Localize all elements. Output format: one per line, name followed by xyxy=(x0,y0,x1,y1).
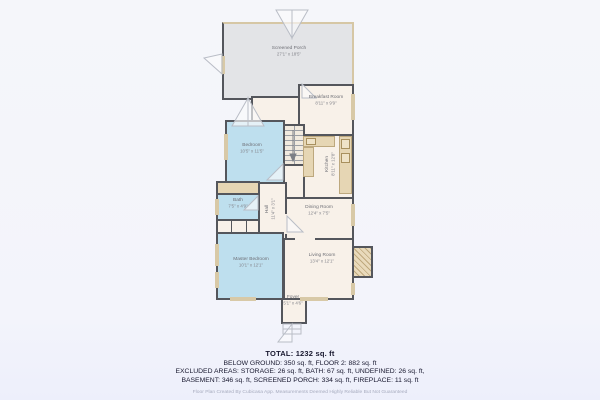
entry-steps xyxy=(283,329,301,334)
room-label-bath: Bath 7'5" x 4'9" xyxy=(228,198,247,210)
room-label-dining: Dining Room 12'4" x 7'5" xyxy=(305,205,333,217)
room-label-foyer: Foyer 5'1" x 4'6" xyxy=(283,295,302,307)
window xyxy=(215,272,219,288)
window xyxy=(215,244,219,266)
appliance-icon xyxy=(341,153,350,163)
room-dining xyxy=(285,197,354,240)
wall-opening xyxy=(295,236,315,242)
window xyxy=(230,297,256,301)
window xyxy=(351,283,355,295)
entry-steps xyxy=(283,324,301,329)
sink-icon xyxy=(306,138,316,145)
summary-line: BELOW GROUND: 350 sq. ft, FLOOR 2: 882 s… xyxy=(0,360,600,367)
closet-divider xyxy=(231,219,232,234)
door-swing-icon xyxy=(278,324,292,342)
wall-opening xyxy=(284,214,289,234)
window xyxy=(221,56,225,74)
room-label-master-bedroom: Master Bedroom 10'1" x 12'1" xyxy=(233,257,268,269)
appliance-icon xyxy=(341,139,350,149)
area-summary: TOTAL: 1232 sq. ft BELOW GROUND: 350 sq.… xyxy=(0,349,600,395)
room-label-breakfast: Breakfast Room 8'11" x 9'9" xyxy=(309,95,343,107)
window xyxy=(351,94,355,120)
window xyxy=(351,204,355,226)
disclaimer-text: Floor Plan Created By Cubicasa App. Meas… xyxy=(54,389,546,394)
room-breakfast xyxy=(298,84,354,136)
room-label-bedroom: Bedroom 10'5" x 11'5" xyxy=(240,143,264,155)
window xyxy=(300,297,328,301)
summary-line: EXCLUDED AREAS: STORAGE: 26 sq. ft, BATH… xyxy=(0,368,600,375)
total-area-text: TOTAL: 1232 sq. ft xyxy=(0,349,600,358)
stairs-divider xyxy=(294,126,295,164)
kitchen-counter xyxy=(303,147,314,177)
room-label-kitchen: Kitchen 8'11" x 12'8" xyxy=(325,152,337,176)
room-label-screened-porch: Screened Porch 27'1" x 18'5" xyxy=(272,46,306,58)
floor-plan-page: Screened Porch 27'1" x 18'5" Breakfast R… xyxy=(0,0,600,400)
room-label-living: Living Room 13'4" x 12'1" xyxy=(309,253,336,265)
door-swing-icon xyxy=(204,54,222,74)
summary-line: BASEMENT: 346 sq. ft, SCREENED PORCH: 33… xyxy=(0,377,600,384)
stairs xyxy=(283,124,305,166)
closet-divider xyxy=(246,219,247,234)
window xyxy=(224,134,228,160)
window xyxy=(215,199,219,215)
room-label-hall: Hall 11'4" x 3'1" xyxy=(265,198,277,219)
room-living xyxy=(283,238,354,300)
fireplace xyxy=(352,246,373,278)
